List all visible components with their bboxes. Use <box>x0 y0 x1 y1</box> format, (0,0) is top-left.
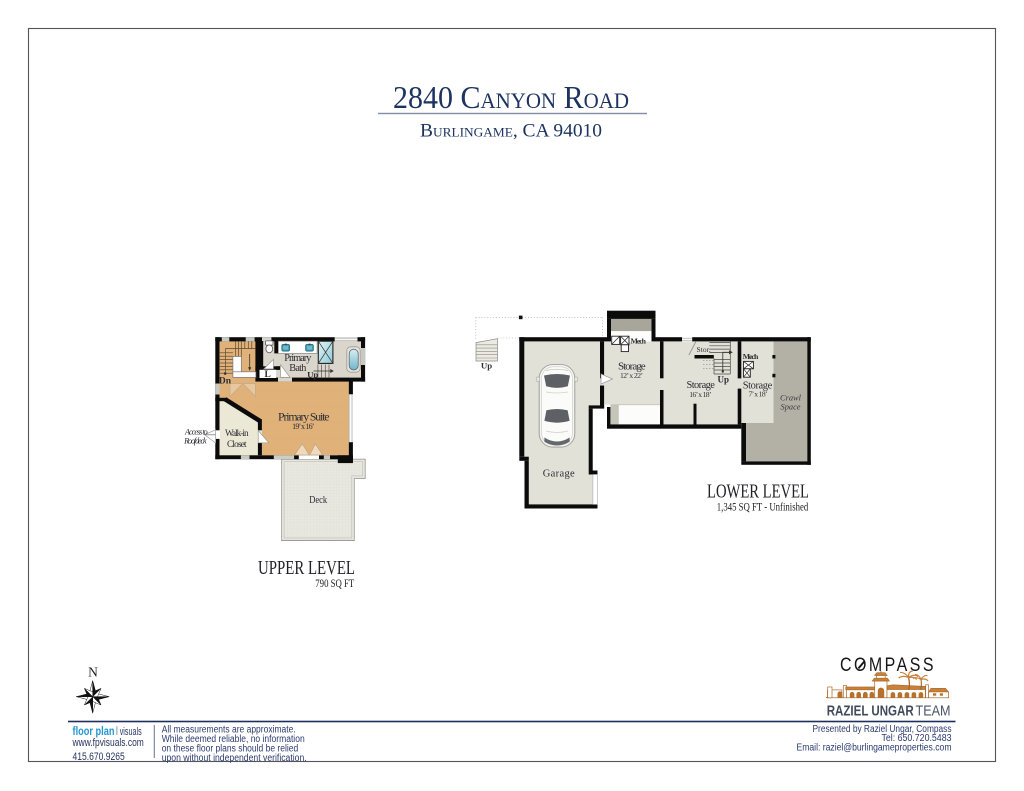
svg-text:Up: Up <box>481 361 492 371</box>
svg-text:415.670.9265: 415.670.9265 <box>73 751 125 763</box>
svg-text:Roofdeck: Roofdeck <box>183 437 207 446</box>
svg-text:Email: raziel@burlingameproper: Email: raziel@burlingameproperties.com <box>797 743 952 754</box>
svg-text:12’ x 22’: 12’ x 22’ <box>620 371 643 380</box>
svg-text:Burlingame, CA 94010: Burlingame, CA 94010 <box>420 121 602 142</box>
svg-text:Closet: Closet <box>227 439 247 449</box>
svg-text:Mech: Mech <box>743 352 759 361</box>
svg-text:19’ x 16’: 19’ x 16’ <box>292 422 314 431</box>
svg-text:Walk-in: Walk-in <box>225 428 249 438</box>
svg-text:Deck: Deck <box>309 494 327 506</box>
svg-text:Access to: Access to <box>184 427 208 436</box>
svg-text:L: L <box>265 370 271 380</box>
svg-text:N: N <box>88 665 98 680</box>
svg-text:7’ x 18’: 7’ x 18’ <box>749 390 768 399</box>
svg-text:Up: Up <box>307 370 318 380</box>
svg-text:1,345 SQ FT - Unfinished: 1,345 SQ FT - Unfinished <box>717 501 809 514</box>
svg-text:www.fpvisuals.com: www.fpvisuals.com <box>72 737 144 749</box>
svg-text:COMPASS: COMPASS <box>840 655 936 676</box>
svg-text:Space: Space <box>781 403 801 412</box>
svg-text:16’ x 18’: 16’ x 18’ <box>689 390 711 399</box>
svg-text:TEAM: TEAM <box>916 704 951 720</box>
svg-text:upon without independent verif: upon without independent verification. <box>162 753 307 764</box>
svg-text:Bath: Bath <box>289 363 306 374</box>
svg-text:RAZIEL UNGAR: RAZIEL UNGAR <box>827 704 914 720</box>
svg-text:LOWER LEVEL: LOWER LEVEL <box>707 481 809 503</box>
svg-text:Stor.: Stor. <box>697 345 711 354</box>
svg-text:Up: Up <box>718 374 730 384</box>
svg-text:Mech: Mech <box>631 336 647 345</box>
svg-text:Crawl: Crawl <box>780 393 802 402</box>
svg-text:2840 Canyon Road: 2840 Canyon Road <box>393 80 629 115</box>
svg-text:790 SQ FT: 790 SQ FT <box>315 576 355 590</box>
svg-text:Garage: Garage <box>543 469 575 480</box>
svg-text:floor plan: floor plan <box>73 724 115 738</box>
